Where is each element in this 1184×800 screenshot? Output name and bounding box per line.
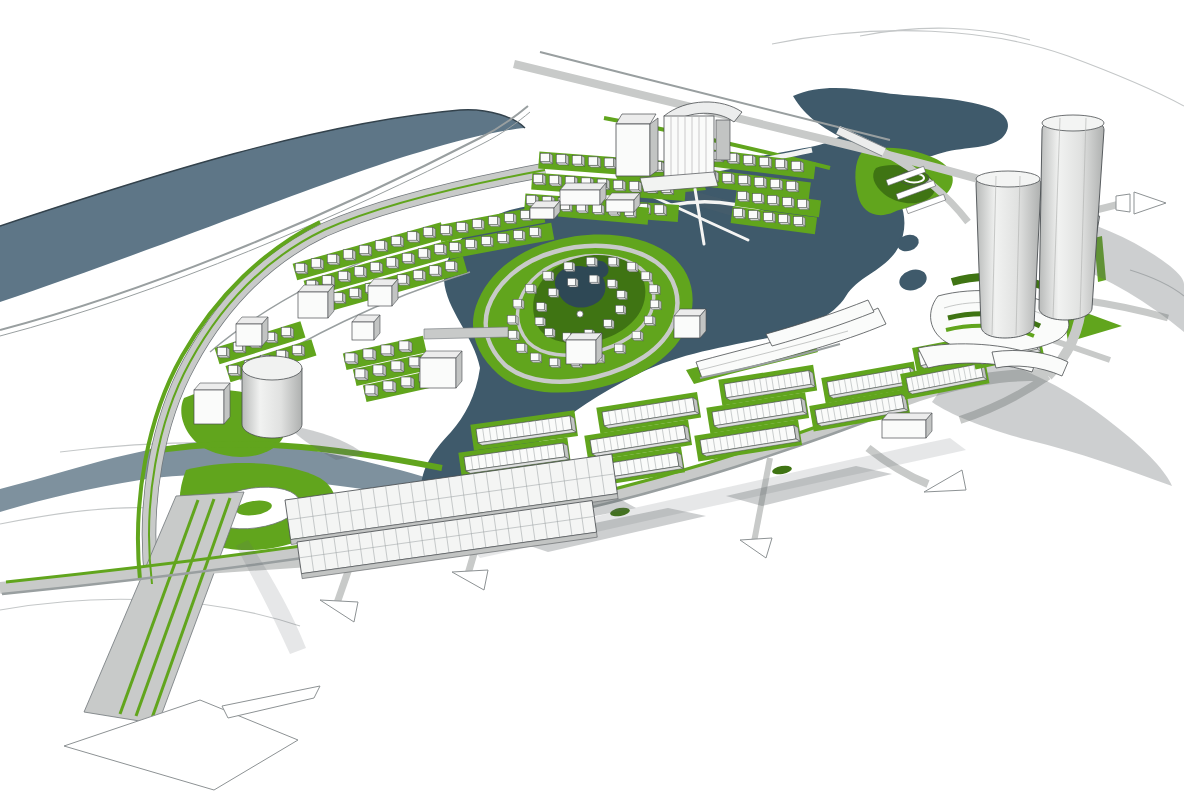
house — [373, 365, 386, 376]
house — [568, 278, 578, 287]
house — [775, 159, 787, 169]
house — [613, 180, 625, 190]
house — [535, 317, 545, 326]
house — [783, 198, 795, 208]
east-arrow-bar — [1116, 194, 1130, 212]
house — [738, 192, 750, 202]
house — [391, 236, 403, 246]
house — [508, 331, 519, 340]
house — [615, 344, 626, 353]
cube-face — [606, 200, 634, 212]
house — [540, 153, 552, 163]
house — [429, 266, 441, 276]
house — [349, 288, 361, 298]
house — [450, 243, 462, 253]
house — [649, 285, 660, 294]
house — [498, 234, 510, 244]
house — [743, 155, 755, 165]
house — [295, 263, 307, 273]
house — [608, 257, 619, 266]
cube-building — [236, 317, 268, 346]
house — [786, 181, 798, 191]
house — [355, 369, 368, 380]
house — [401, 377, 414, 388]
house — [531, 353, 542, 362]
house — [754, 177, 766, 187]
cube-side — [224, 383, 230, 424]
house — [473, 220, 485, 230]
house — [292, 345, 304, 355]
cube-side — [456, 351, 462, 388]
house — [530, 228, 542, 238]
house — [629, 181, 641, 191]
house — [333, 293, 345, 303]
house — [753, 194, 765, 204]
cube-roof — [882, 413, 932, 420]
house — [363, 349, 376, 360]
house — [738, 175, 750, 185]
house — [533, 174, 545, 184]
house — [549, 175, 561, 185]
cube-roof — [420, 351, 462, 358]
house — [632, 331, 643, 340]
house — [418, 249, 430, 259]
cube-building — [368, 279, 398, 306]
house — [322, 276, 334, 286]
house — [586, 257, 597, 266]
house — [354, 267, 366, 277]
cube-face — [560, 190, 600, 205]
house — [514, 231, 526, 241]
house — [370, 262, 382, 272]
cube-building — [194, 383, 230, 424]
masterplan-svg: Urban waterfront masterplan - aerial 3D … — [0, 0, 1184, 800]
house — [445, 261, 457, 271]
house — [588, 157, 600, 167]
house — [545, 328, 555, 337]
cube-building — [882, 413, 932, 438]
house — [423, 227, 435, 237]
cube-building — [560, 183, 606, 205]
house — [338, 271, 350, 281]
house — [644, 316, 655, 325]
cube-building — [298, 285, 334, 318]
cube-building — [352, 315, 380, 340]
cube-roof — [560, 183, 606, 190]
house — [564, 262, 575, 271]
house — [572, 156, 584, 166]
house — [311, 259, 323, 269]
house — [402, 253, 414, 263]
house — [525, 284, 536, 293]
house — [375, 241, 387, 251]
house — [383, 381, 396, 392]
cube-building — [566, 333, 602, 364]
cube-building — [530, 201, 560, 219]
cube-building — [674, 309, 706, 338]
house — [543, 271, 554, 280]
house — [228, 365, 240, 375]
house — [556, 154, 568, 164]
cube-face — [420, 358, 456, 388]
house — [536, 303, 546, 312]
house — [768, 196, 780, 206]
house — [345, 353, 358, 364]
house — [759, 157, 771, 167]
house — [399, 341, 412, 352]
cube-face — [368, 286, 392, 306]
house — [548, 288, 558, 297]
house — [734, 209, 746, 219]
cube-building — [420, 351, 462, 388]
north-tower-a — [616, 114, 658, 176]
house — [217, 347, 229, 357]
house — [434, 244, 446, 254]
house — [604, 158, 616, 168]
house — [386, 258, 398, 268]
east-tower-front — [976, 171, 1041, 338]
house — [466, 240, 478, 250]
house — [654, 205, 666, 215]
house — [617, 291, 627, 300]
island-bridge — [424, 327, 508, 339]
house — [749, 211, 761, 221]
cube-face — [194, 390, 224, 424]
house — [593, 205, 605, 215]
house — [281, 327, 293, 337]
house — [549, 358, 560, 367]
house — [343, 250, 355, 260]
house — [791, 161, 803, 171]
house — [627, 262, 638, 271]
house — [798, 200, 810, 210]
house — [365, 385, 378, 396]
house — [381, 345, 394, 356]
house — [413, 270, 425, 280]
house — [650, 300, 661, 309]
house — [507, 315, 518, 324]
cube-face — [674, 316, 700, 338]
house — [482, 237, 494, 247]
house — [589, 275, 599, 284]
house — [489, 217, 501, 227]
house — [513, 299, 524, 308]
house — [641, 272, 652, 281]
house — [505, 214, 517, 224]
cube-face — [566, 340, 596, 364]
cube-face — [352, 322, 374, 340]
house — [722, 173, 734, 183]
cube-face — [882, 420, 926, 438]
cube-face — [530, 208, 554, 219]
island-gazebo — [577, 311, 583, 317]
house — [359, 245, 371, 255]
house — [794, 217, 806, 227]
house — [397, 275, 409, 285]
house — [391, 361, 404, 372]
masterplan-rendering: Urban waterfront masterplan - aerial 3D … — [0, 0, 1184, 800]
house — [441, 226, 453, 236]
west-tank-building — [242, 356, 302, 438]
house — [327, 254, 339, 264]
house — [616, 305, 626, 314]
cube-building — [606, 193, 640, 212]
house — [604, 320, 614, 329]
house — [770, 179, 782, 189]
cube-face — [236, 324, 262, 346]
house — [764, 213, 776, 223]
house — [779, 215, 791, 225]
cube-face — [298, 292, 328, 318]
house — [516, 344, 527, 353]
house — [607, 280, 617, 289]
house — [457, 223, 469, 233]
house — [407, 232, 419, 242]
